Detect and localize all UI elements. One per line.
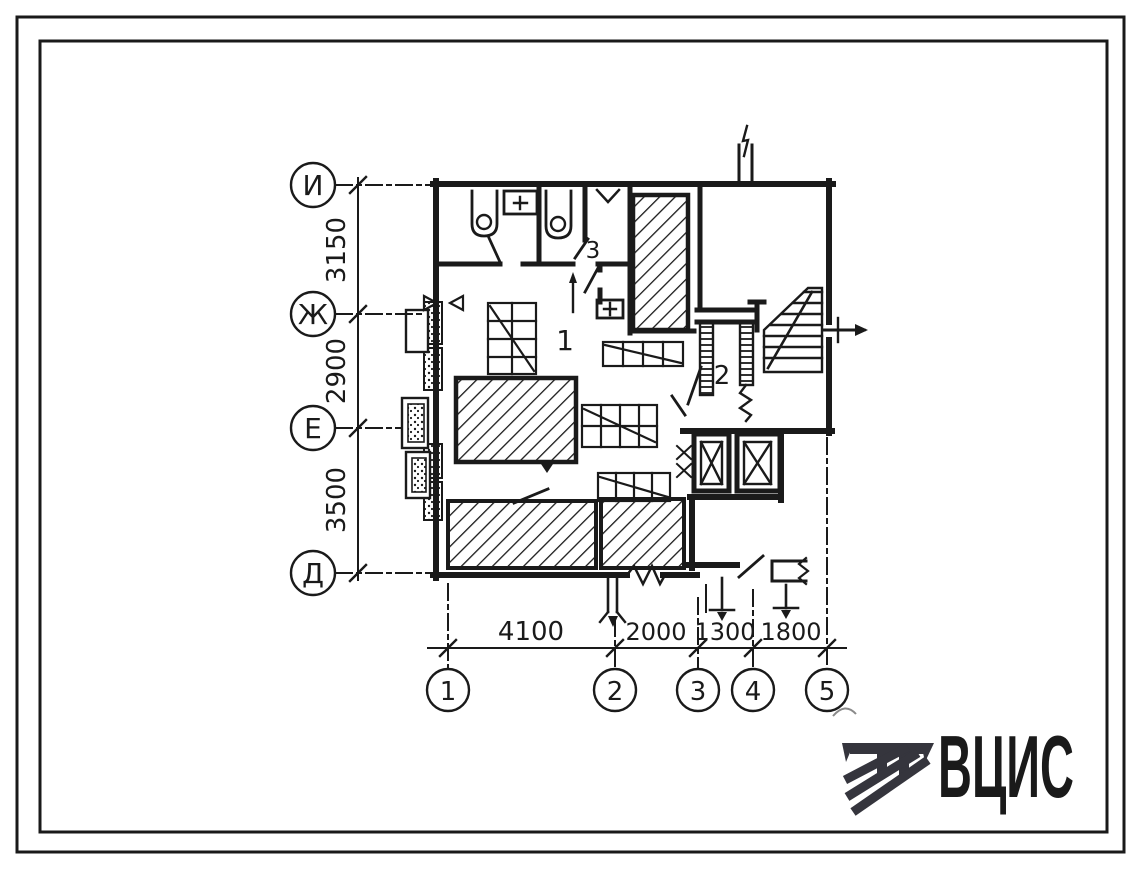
row-axis-label: Е [304,412,322,445]
row-axis-label: Д [302,557,324,590]
column-axis-label: 2 [607,677,624,707]
floor-plan-drawing: И Ж Е Д 1 2 3 4 5 3150 2900 3500 4100 20… [0,0,1139,869]
wall-break-zigzag [740,385,751,421]
dimension-value: 3150 [322,217,352,283]
row-axes [291,163,436,595]
dimension-value: 4100 [498,617,564,647]
equipment-table-4 [603,342,683,366]
column-axis-label: 5 [819,677,836,707]
drain-pipe-icon [774,585,798,619]
door-leaf [585,268,598,292]
room-number: 1 [556,324,574,357]
equipment-table-2 [582,405,657,447]
scanned-floor-plan-sheet: И Ж Е Д 1 2 3 4 5 3150 2900 3500 4100 20… [0,0,1139,869]
toilet-icon [546,191,571,238]
room-number: 2 [714,361,731,391]
logo-text: ВЦИС [938,717,1074,816]
dimension-value: 2900 [322,338,352,404]
column-axis-label: 3 [690,677,707,707]
column-axis-label: 1 [440,677,457,707]
publisher-logo: ВЦИС [833,708,1074,816]
column-axis-bubbles [427,669,848,711]
logo-emblem-stripes [845,747,928,812]
door-leaf [739,556,763,577]
elevator-shaft-icon [694,434,729,491]
hatched-block-bottom-right [601,499,684,568]
drain-pipe-icon [600,578,625,627]
equipment-table-1 [488,303,536,374]
niche-mark-icon [597,190,619,202]
toilet-icon [472,191,497,236]
service-box [772,558,808,584]
drain-pipe-icon [706,578,734,621]
cross-hatch-wall-piece [677,446,691,477]
flow-arrow-icon [569,272,577,312]
room-number: 3 [586,238,601,264]
door-leaf [672,396,685,415]
row-axis-label: Ж [298,298,328,331]
dimension-value: 1800 [760,618,821,646]
hatched-shaft-top [633,195,688,330]
equipment-table-3 [598,473,670,501]
window-sill-box [406,310,428,352]
door-leaf [489,238,500,262]
dimension-value: 2000 [625,618,686,646]
column-axis-label: 4 [745,677,762,707]
chimney-icon [739,126,752,182]
dimension-value: 3500 [322,467,352,533]
drain-mark-icon [541,464,553,473]
row-axis-label: И [303,169,324,202]
entry-flag-icon [450,296,463,310]
sink-icon [504,191,537,214]
stair-direction-line [768,292,812,368]
hatched-block-center [456,378,576,473]
elevator-shaft-icon [737,434,780,491]
staircase [764,288,822,372]
dimension-value: 1300 [694,618,755,646]
hatched-block-bottom-left [448,501,596,568]
